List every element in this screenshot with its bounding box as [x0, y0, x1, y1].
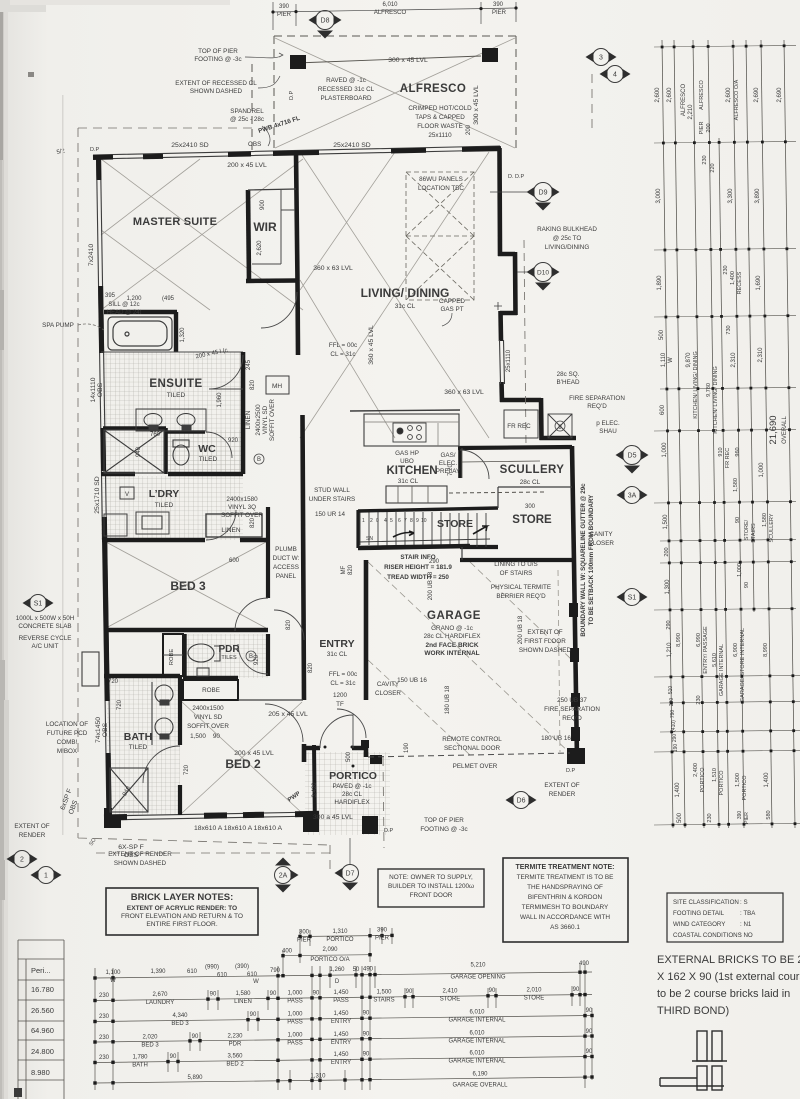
svg-text:230: 230: [99, 1035, 110, 1041]
svg-text:25x1110: 25x1110: [506, 349, 512, 372]
svg-text:(390): (390): [235, 964, 249, 970]
svg-text:74x1450: 74x1450: [95, 717, 102, 743]
svg-text:GAS/: GAS/: [440, 452, 455, 459]
svg-text:STAIRS: STAIRS: [373, 998, 394, 1004]
svg-text:10: 10: [421, 518, 427, 524]
svg-text:TAPS & CAPPED: TAPS & CAPPED: [415, 114, 465, 121]
svg-text:600: 600: [229, 558, 240, 564]
svg-text:V: V: [125, 492, 129, 498]
svg-text:400: 400: [282, 949, 293, 955]
svg-text:1,400: 1,400: [675, 782, 681, 798]
svg-text:2,310: 2,310: [731, 352, 737, 368]
svg-text:200 UB 18: 200 UB 18: [428, 571, 434, 600]
svg-text:2,400: 2,400: [693, 763, 699, 777]
svg-text:FFL = 00c: FFL = 00c: [329, 671, 357, 678]
svg-text:28c CL: 28c CL: [520, 479, 541, 486]
svg-text:18x610 A 18x610 A 18x610 A: 18x610 A 18x610 A 18x610 A: [194, 825, 283, 832]
svg-text:PLUMB: PLUMB: [275, 546, 297, 553]
svg-text:90: 90: [192, 1034, 199, 1040]
svg-text:SCULLERY: SCULLERY: [769, 513, 775, 542]
svg-text:PIER: PIER: [699, 122, 705, 135]
svg-text:2,410: 2,410: [442, 989, 458, 995]
svg-text:MASTER SUITE: MASTER SUITE: [133, 216, 217, 228]
svg-text:W: W: [110, 978, 116, 984]
svg-text:3,560: 3,560: [227, 1053, 243, 1059]
svg-text:2,600: 2,600: [655, 87, 661, 103]
svg-text:: TBA: : TBA: [740, 910, 756, 917]
svg-text:STUD WALL: STUD WALL: [314, 487, 350, 494]
svg-text:150 UR 14: 150 UR 14: [315, 511, 346, 518]
svg-text:245: 245: [246, 359, 252, 370]
svg-text:2,010: 2,010: [526, 988, 542, 994]
svg-text:STORE: STORE: [524, 996, 545, 1002]
svg-text:90: 90: [313, 990, 320, 996]
svg-text:25x2410 SD: 25x2410 SD: [333, 142, 371, 149]
svg-text:820: 820: [286, 619, 292, 630]
svg-text:8: 8: [410, 518, 413, 524]
svg-text:3,000: 3,000: [656, 188, 662, 204]
svg-text:B’HEAD: B’HEAD: [556, 379, 580, 386]
svg-text:1,890: 1,890: [657, 275, 663, 291]
svg-text:2nd FACE BRICK: 2nd FACE BRICK: [425, 642, 478, 649]
svg-text:LINEN: LINEN: [245, 410, 252, 429]
svg-text:1,400: 1,400: [730, 271, 736, 285]
svg-text:RENDER: RENDER: [19, 832, 46, 839]
svg-text:PDR: PDR: [218, 644, 240, 655]
svg-text:BIFENTHRIN & KORDON: BIFENTHRIN & KORDON: [528, 894, 603, 901]
svg-text:390: 390: [377, 928, 388, 934]
svg-text:BUILDER TO INSTALL 1200ω: BUILDER TO INSTALL 1200ω: [388, 883, 474, 890]
svg-text:D6: D6: [517, 798, 526, 805]
svg-text:200 x 45 LVL: 200 x 45 LVL: [227, 162, 267, 169]
svg-text:VINYL 3Q: VINYL 3Q: [228, 504, 256, 511]
svg-text:1,450: 1,450: [333, 1032, 349, 1038]
svg-text:D.P: D.P: [90, 147, 100, 153]
svg-text:2: 2: [370, 518, 373, 524]
svg-text:SPA PUMP: SPA PUMP: [42, 322, 74, 329]
svg-text:THIRD BOND): THIRD BOND): [657, 1005, 729, 1017]
svg-text:LIVING/DINING: LIVING/DINING: [545, 244, 590, 251]
svg-text:BOUNDARY WALL W: SQUARELINE GU: BOUNDARY WALL W: SQUARELINE GUTTER @ 29c: [580, 483, 587, 637]
svg-text:EXTENT OF RECESSED CL: EXTENT OF RECESSED CL: [175, 80, 257, 87]
svg-text:90: 90: [586, 1049, 593, 1055]
svg-text:230: 230: [702, 155, 708, 164]
svg-text:1,780: 1,780: [132, 1055, 148, 1061]
svg-text:FRONT ELEVATION AND RETURN & T: FRONT ELEVATION AND RETURN & TO: [121, 913, 243, 920]
svg-text:2400x2500: 2400x2500: [255, 404, 262, 436]
svg-text:6,190: 6,190: [472, 1071, 488, 1077]
svg-text:180 UB 16: 180 UB 16: [541, 735, 571, 742]
svg-text:1,510: 1,510: [712, 768, 718, 782]
svg-text:26.560: 26.560: [31, 1006, 54, 1015]
svg-text:STORE: STORE: [440, 997, 461, 1003]
svg-text:6,900: 6,900: [733, 643, 739, 657]
svg-text:REQ’D: REQ’D: [587, 403, 607, 410]
svg-text:1,210: 1,210: [667, 642, 673, 658]
svg-text:290: 290: [669, 698, 675, 707]
svg-text:ENTRY/ PASSAGE: ENTRY/ PASSAGE: [703, 626, 709, 674]
svg-text:BED 3: BED 3: [171, 1021, 189, 1027]
svg-text:AS 3660.1: AS 3660.1: [550, 924, 580, 931]
svg-text:(990): (990): [205, 965, 219, 971]
svg-text:ENSUITE: ENSUITE: [149, 378, 202, 390]
svg-text:D.P: D.P: [384, 828, 394, 834]
svg-text:720: 720: [108, 679, 119, 685]
svg-text:25x1710 SD: 25x1710 SD: [94, 476, 101, 514]
svg-text:X 162 X 90 (1st external cours: X 162 X 90 (1st external course: [657, 971, 800, 983]
svg-text:PIER: PIER: [744, 812, 750, 824]
svg-text:820: 820: [250, 379, 256, 390]
svg-text:PIER: PIER: [277, 12, 292, 18]
svg-text:FR REC: FR REC: [725, 448, 731, 469]
svg-text:OBS: OBS: [248, 141, 261, 148]
svg-text:UBO: UBO: [400, 458, 414, 465]
svg-text:86WU PANELS: 86WU PANELS: [419, 176, 463, 183]
svg-text:290: 290: [672, 734, 678, 743]
svg-text:1,310: 1,310: [310, 1073, 326, 1079]
svg-text:230: 230: [99, 993, 110, 999]
svg-text:WC: WC: [198, 443, 216, 455]
svg-text:TERMITE TREATMENT IS TO BE: TERMITE TREATMENT IS TO BE: [517, 874, 614, 881]
svg-text:RECESSED 31c CL: RECESSED 31c CL: [318, 86, 375, 93]
svg-text:90: 90: [363, 1052, 370, 1058]
svg-text:EXTERNAL BRICKS TO BE 29: EXTERNAL BRICKS TO BE 29: [657, 954, 800, 966]
svg-text:1,500: 1,500: [663, 514, 669, 530]
svg-text:960: 960: [735, 447, 741, 456]
svg-text:200 UB 18: 200 UB 18: [518, 615, 524, 644]
svg-text:2: 2: [20, 857, 24, 864]
svg-text:SCULLERY: SCULLERY: [500, 464, 565, 476]
svg-text:PLASTERBOARD: PLASTERBOARD: [320, 95, 372, 102]
svg-text:TILED: TILED: [129, 744, 148, 751]
svg-text:1,500: 1,500: [735, 773, 741, 787]
svg-text:220: 220: [710, 163, 716, 172]
svg-text:@ 25c TO: @ 25c TO: [553, 235, 582, 242]
svg-text:SPANDREL: SPANDREL: [230, 108, 264, 115]
svg-text:3: 3: [599, 55, 603, 62]
svg-text:ENTIRE FIRST FLOOR.: ENTIRE FIRST FLOOR.: [146, 921, 217, 928]
svg-text:1,320: 1,320: [180, 327, 186, 343]
svg-text:1,450: 1,450: [333, 990, 349, 996]
svg-text:BED 2: BED 2: [225, 757, 261, 771]
svg-text:PIER: PIER: [297, 938, 312, 944]
svg-text:25x2410 SD: 25x2410 SD: [171, 142, 209, 149]
svg-text:PDR: PDR: [229, 1041, 242, 1047]
svg-text:PORTICO: PORTICO: [326, 937, 354, 943]
svg-text:6,010: 6,010: [382, 2, 398, 8]
svg-text:B: B: [257, 457, 261, 463]
svg-text:S1: S1: [34, 601, 43, 608]
svg-text:ACCESS: ACCESS: [273, 564, 299, 571]
svg-text:900: 900: [260, 199, 266, 210]
svg-text:OVERALL: OVERALL: [782, 416, 788, 444]
svg-text:BERRIER REQ’D: BERRIER REQ’D: [496, 593, 546, 600]
svg-text:6X-SP F: 6X-SP F: [118, 844, 144, 851]
svg-text:390: 390: [279, 4, 290, 10]
svg-text:SHOWN DASHED: SHOWN DASHED: [519, 647, 572, 654]
svg-text:BED 3: BED 3: [170, 579, 206, 593]
svg-text:GAS PT: GAS PT: [440, 306, 463, 313]
svg-text:820: 820: [348, 564, 354, 575]
svg-text:1,690: 1,690: [756, 275, 762, 291]
svg-text:14x1110: 14x1110: [90, 377, 97, 402]
svg-text:190: 190: [673, 744, 679, 753]
svg-text:90: 90: [586, 1008, 593, 1014]
svg-text:BRICK LAYER NOTES:: BRICK LAYER NOTES:: [131, 892, 234, 903]
svg-text:500: 500: [346, 751, 352, 762]
svg-text:90: 90: [406, 989, 413, 995]
svg-text:p ELEC.: p ELEC.: [596, 420, 620, 427]
svg-text:KITCHEN/ LIVING/ DINING: KITCHEN/ LIVING/ DINING: [693, 351, 699, 419]
svg-text:2,600: 2,600: [726, 87, 732, 103]
svg-text:(410): (410): [671, 720, 677, 732]
svg-text:64.960: 64.960: [31, 1026, 54, 1035]
svg-text:HEAD @ 24t: HEAD @ 24t: [107, 310, 142, 316]
svg-text:31c CL: 31c CL: [327, 651, 348, 658]
svg-text:D10: D10: [537, 270, 549, 277]
svg-text:2,670: 2,670: [152, 992, 168, 998]
svg-text:HARDIFLEX: HARDIFLEX: [334, 799, 370, 806]
svg-text:OF STAIRS: OF STAIRS: [500, 570, 533, 577]
svg-text:UNDER STAIRS: UNDER STAIRS: [309, 496, 355, 503]
svg-text:FIRE SEPARATION: FIRE SEPARATION: [544, 706, 600, 713]
svg-text:2,230: 2,230: [227, 1033, 243, 1039]
svg-text:300 x 45 LVL: 300 x 45 LVL: [473, 85, 480, 125]
svg-text:RISER HEIGHT = 181.9: RISER HEIGHT = 181.9: [384, 564, 452, 571]
svg-text:D5: D5: [628, 453, 637, 460]
svg-text:@ 25c - 28c: @ 25c - 28c: [230, 116, 264, 123]
svg-text:FRONT DOOR: FRONT DOOR: [410, 892, 453, 899]
svg-text:TILED: TILED: [167, 392, 186, 399]
svg-text:200 x 45 LVL: 200 x 45 LVL: [234, 750, 274, 757]
svg-text:KITCHEN: KITCHEN: [386, 465, 437, 477]
svg-text:7x2410: 7x2410: [88, 244, 95, 267]
svg-text:510: 510: [668, 686, 674, 695]
svg-text:KITCHEN/ LIVING/ DINING: KITCHEN/ LIVING/ DINING: [713, 366, 719, 434]
svg-text:6,010: 6,010: [469, 1009, 485, 1015]
svg-text:610: 610: [247, 972, 258, 978]
svg-text:500: 500: [659, 329, 665, 340]
svg-text:200: 200: [664, 547, 670, 556]
svg-text:RAVED @ -1c: RAVED @ -1c: [326, 77, 366, 84]
svg-text:730: 730: [726, 325, 732, 334]
svg-text:1,000: 1,000: [662, 442, 668, 458]
svg-text:FOOTING DETAIL: FOOTING DETAIL: [673, 910, 725, 917]
svg-text:9,780: 9,780: [706, 383, 712, 397]
svg-text:OBS: OBS: [97, 382, 104, 397]
svg-text:9,870: 9,870: [686, 352, 692, 368]
svg-text:90: 90: [586, 1029, 593, 1035]
svg-text:LINEN: LINEN: [221, 527, 240, 534]
svg-text:EXTENT OF: EXTENT OF: [527, 629, 562, 636]
svg-text:SOFFIT OVER: SOFFIT OVER: [221, 512, 263, 519]
svg-text:1200: 1200: [333, 692, 348, 699]
svg-text:5,890: 5,890: [187, 1075, 203, 1081]
svg-text:VINYL SD: VINYL SD: [262, 405, 269, 434]
svg-text:LOCATION OF: LOCATION OF: [46, 721, 88, 728]
svg-text:LINEN: LINEN: [234, 999, 252, 1005]
svg-text:3A: 3A: [628, 493, 637, 500]
svg-text:910: 910: [718, 447, 724, 456]
svg-text:SN: SN: [366, 536, 373, 542]
svg-text:360 x 63 LVL: 360 x 63 LVL: [444, 389, 484, 396]
svg-text:300: 300: [299, 930, 310, 936]
svg-text:STORE/: STORE/: [744, 519, 750, 540]
svg-text:RENDER: RENDER: [549, 791, 576, 798]
svg-text:2,020: 2,020: [142, 1034, 158, 1040]
svg-text:LINING TO U/S: LINING TO U/S: [494, 561, 538, 568]
svg-text:FOOTING @ -3c: FOOTING @ -3c: [420, 826, 467, 833]
svg-text:EXTENT OF: EXTENT OF: [544, 782, 579, 789]
svg-text:1,000: 1,000: [737, 563, 743, 577]
svg-text:28c SQ.: 28c SQ.: [557, 371, 580, 378]
svg-text:940: 940: [136, 446, 142, 457]
svg-text:BED 2: BED 2: [226, 1061, 244, 1067]
svg-text:1,580: 1,580: [762, 513, 768, 527]
svg-text:GARAGE INTERNAL: GARAGE INTERNAL: [448, 1058, 506, 1064]
svg-text:300 a 45 LVL: 300 a 45 LVL: [313, 814, 353, 821]
svg-text:MH: MH: [272, 383, 282, 390]
svg-text:FR REC: FR REC: [507, 423, 531, 430]
svg-text:D9: D9: [539, 190, 548, 197]
svg-text:790: 790: [270, 968, 281, 974]
svg-text:1,000: 1,000: [287, 991, 303, 997]
svg-text:200: 200: [706, 123, 712, 132]
svg-text:RAKING BULKHEAD: RAKING BULKHEAD: [537, 226, 597, 233]
svg-text:FOOTING @ -3c: FOOTING @ -3c: [194, 56, 241, 63]
svg-text:WORK INTERNAL: WORK INTERNAL: [424, 650, 479, 657]
svg-text:2,600: 2,600: [667, 87, 673, 103]
svg-text:WALL IN ACCORDANCE WITH: WALL IN ACCORDANCE WITH: [520, 914, 610, 921]
svg-text:B: B: [249, 654, 253, 660]
svg-text:230: 230: [723, 265, 729, 274]
svg-text:STORE: STORE: [437, 518, 473, 530]
svg-text:EXTENT OF: EXTENT OF: [14, 823, 49, 830]
svg-text:S1: S1: [628, 595, 637, 602]
svg-text:ALFRESCO: ALFRESCO: [699, 79, 705, 109]
svg-text:1,000: 1,000: [287, 1012, 303, 1018]
svg-text:TOP OF PIER: TOP OF PIER: [198, 48, 238, 55]
svg-text:to be 2 course bricks laid in: to be 2 course bricks laid in: [657, 988, 790, 1000]
svg-text:CONCRETE SLAB: CONCRETE SLAB: [18, 623, 71, 630]
svg-text:PORTICO O/A: PORTICO O/A: [310, 957, 349, 963]
svg-text:610: 610: [187, 969, 198, 975]
svg-text:RECESS: RECESS: [737, 271, 743, 294]
svg-text:FLOOR WASTE: FLOOR WASTE: [417, 123, 463, 130]
svg-text:205 x 45 LVL: 205 x 45 LVL: [268, 711, 308, 718]
svg-text:6,010: 6,010: [469, 1050, 485, 1056]
svg-text:CAPPED: CAPPED: [439, 298, 465, 305]
svg-text:SOFFIT OVER: SOFFIT OVER: [187, 723, 229, 730]
svg-text:BED 3: BED 3: [141, 1042, 159, 1048]
svg-text:90: 90: [250, 1012, 257, 1018]
svg-text:: NO: : NO: [740, 932, 753, 939]
svg-text:PASS: PASS: [287, 1020, 303, 1026]
svg-text:490: 490: [579, 961, 590, 967]
svg-text:TERMIMESH TO BOUNDARY: TERMIMESH TO BOUNDARY: [522, 904, 609, 911]
svg-text:90: 90: [744, 582, 750, 588]
svg-text:500: 500: [677, 812, 683, 823]
svg-text:7: 7: [404, 518, 407, 524]
svg-text:PIER: PIER: [492, 10, 507, 16]
svg-text:GRANO @ -1c: GRANO @ -1c: [431, 625, 473, 632]
svg-text:FFL = 00c: FFL = 00c: [329, 342, 357, 349]
svg-text:ROBE: ROBE: [202, 687, 220, 694]
svg-text:GARAGE/ STORE INTERNAL: GARAGE/ STORE INTERNAL: [740, 628, 746, 702]
svg-text:VINYL SD: VINYL SD: [194, 714, 223, 721]
svg-text:SHOWN DASHED: SHOWN DASHED: [114, 860, 167, 867]
svg-text:PASS: PASS: [287, 1041, 303, 1047]
svg-text:M!BOX: M!BOX: [57, 748, 78, 755]
svg-text:PAVED @ -1c: PAVED @ -1c: [332, 783, 371, 790]
svg-text:28c CL: 28c CL: [342, 791, 362, 798]
svg-text:A/C UNIT: A/C UNIT: [32, 643, 59, 650]
svg-text:PORTICO: PORTICO: [742, 775, 748, 801]
svg-text:BATH: BATH: [132, 1063, 148, 1069]
svg-text:COMB!: COMB!: [57, 739, 78, 746]
svg-text:395: 395: [105, 293, 116, 299]
svg-text:28c CL HARDIFLEX: 28c CL HARDIFLEX: [424, 633, 482, 640]
svg-text:4: 4: [613, 72, 617, 79]
svg-text:290: 290: [666, 620, 672, 629]
svg-text:EXTENT OF RENDER: EXTENT OF RENDER: [108, 851, 172, 858]
svg-text:SOFFIT OVER: SOFFIT OVER: [269, 399, 276, 441]
svg-text:2400x1580: 2400x1580: [226, 496, 258, 503]
svg-text:TOP OF PIER: TOP OF PIER: [424, 817, 464, 824]
svg-text:90: 90: [270, 991, 277, 997]
svg-text:MF: MF: [341, 565, 347, 574]
svg-text:1,000: 1,000: [759, 462, 765, 478]
svg-text:CLOSER: CLOSER: [375, 690, 401, 697]
svg-text:ENTRY: ENTRY: [319, 638, 354, 650]
svg-text:50: 50: [353, 967, 360, 973]
svg-text:FUTURE PCD: FUTURE PCD: [47, 730, 88, 737]
svg-text:1: 1: [44, 873, 48, 880]
svg-text:1,500: 1,500: [376, 990, 392, 996]
svg-text:820: 820: [308, 662, 314, 673]
svg-text:PELMET OVER: PELMET OVER: [453, 763, 498, 770]
svg-text:1: 1: [362, 518, 365, 524]
svg-text:90: 90: [489, 988, 496, 994]
svg-text:250 UB 37: 250 UB 37: [557, 697, 587, 704]
svg-text:BATH: BATH: [124, 731, 152, 743]
svg-text:2,090: 2,090: [322, 947, 338, 953]
svg-text:4,340: 4,340: [172, 1013, 188, 1019]
svg-text:290: 290: [429, 559, 440, 565]
svg-text:GARAGE OVERALL: GARAGE OVERALL: [452, 1082, 508, 1088]
svg-text:REVERSE CYCLE: REVERSE CYCLE: [19, 635, 72, 642]
svg-text:580: 580: [766, 810, 772, 819]
svg-text:TILED: TILED: [155, 502, 174, 509]
svg-text:90: 90: [170, 1054, 177, 1060]
svg-text:6,010: 6,010: [469, 1030, 485, 1036]
svg-text:90: 90: [210, 992, 217, 998]
svg-text:GARAGE: GARAGE: [427, 610, 481, 622]
svg-text:CL = 31c: CL = 31c: [330, 351, 355, 358]
svg-text:WIND CATEGORY: WIND CATEGORY: [673, 921, 725, 928]
svg-text:REQ’D: REQ’D: [562, 715, 582, 722]
svg-text:490: 490: [363, 967, 374, 973]
svg-text:31c CL: 31c CL: [395, 303, 416, 310]
svg-text:Peri...: Peri...: [31, 966, 51, 975]
svg-text:ROBE: ROBE: [169, 649, 175, 666]
svg-text:W: W: [668, 357, 674, 363]
svg-text:DUCT W:: DUCT W:: [273, 555, 300, 562]
svg-text:PORTICO: PORTICO: [719, 770, 725, 796]
svg-text:3,420: 3,420: [312, 782, 318, 798]
svg-text:ALFRESCO: ALFRESCO: [374, 10, 407, 16]
svg-text:SHOWN DASHED: SHOWN DASHED: [190, 88, 243, 95]
